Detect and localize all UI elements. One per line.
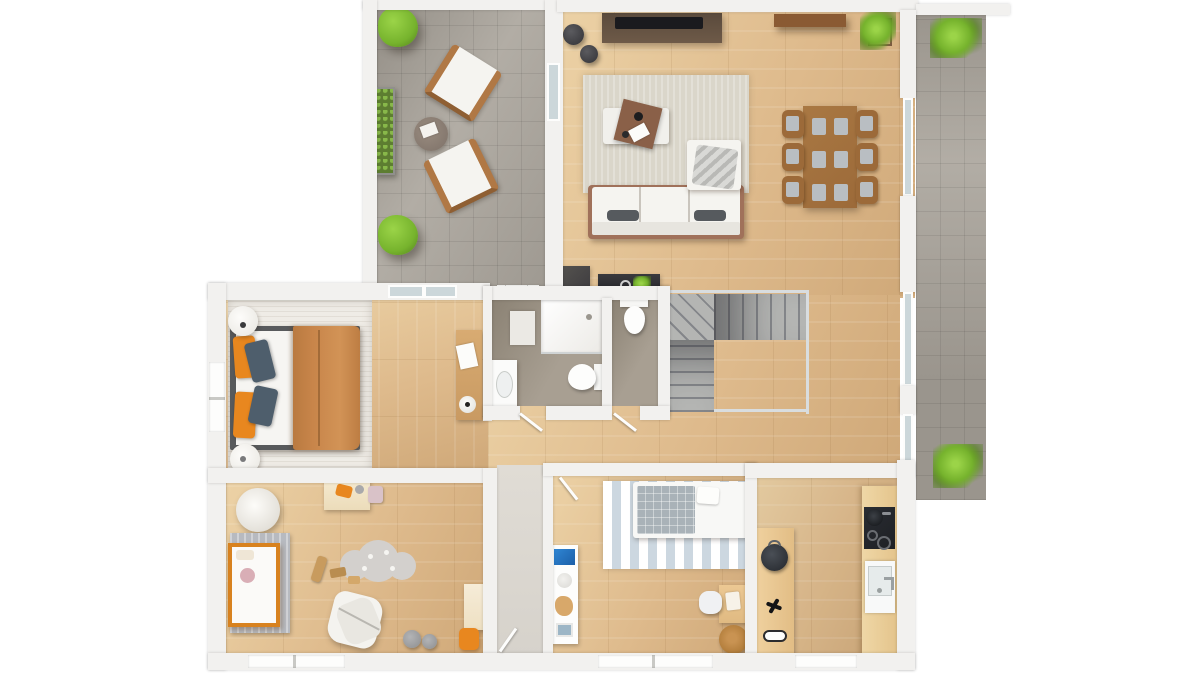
jute-rug [719,625,748,654]
pot-handle [882,512,891,515]
wall [916,4,1010,15]
wall [545,0,563,296]
bag [761,544,788,571]
sink-basin [496,371,513,398]
wall [897,460,915,670]
wooden-toy [348,576,360,584]
nightstand [228,306,258,336]
shower [541,300,602,354]
floor-pouf [580,45,598,63]
glass-door [903,414,913,462]
throw-blanket [691,144,738,189]
dining-cushion [834,184,848,201]
bag-handle [768,540,781,546]
bed-pillow [696,486,719,504]
bush-icon [378,215,418,255]
floor-pouf [563,24,584,45]
bath-mat [510,311,535,345]
wall [745,463,915,478]
wall [363,0,560,10]
picture-frame [556,623,573,637]
sofa-cushion [694,210,726,221]
lamp-button [465,402,470,407]
wall [658,286,670,418]
wall [900,196,916,292]
glass-door [547,63,560,121]
wall [543,465,553,660]
wall [745,463,757,658]
stairs-winder [668,294,714,340]
terrace-plant-icon [933,444,983,488]
stairs-left-run [668,340,714,412]
wall [900,10,916,98]
tv-icon [615,17,703,29]
toy-box [368,486,383,503]
wall [483,286,492,421]
sofa-backrest [592,222,740,235]
toilet-icon [568,364,596,390]
dining-cushion [812,184,826,201]
bowl [557,573,572,588]
entry-hall-floor [497,465,545,660]
notebook [725,591,741,610]
glass-railing [714,409,806,412]
mini-pouf [403,630,421,648]
bowl [634,112,643,121]
wall [208,468,483,483]
dining-cushion [812,118,826,135]
basket [555,596,573,616]
plaid-blanket [637,486,695,534]
wall [483,406,520,420]
window [209,362,225,432]
terrace-plant-icon [930,18,982,58]
window [598,655,713,668]
floor-basket [236,488,280,532]
glass-door [903,292,913,386]
crib-pillow [236,550,254,560]
nightstand-decor [240,456,246,462]
faucet [884,577,894,580]
dining-cushion [834,118,848,135]
wall [900,386,916,414]
blanket-fold [318,330,320,446]
burner-ring [867,530,878,541]
glass-railing [806,292,809,414]
wall-shelf [774,14,846,27]
sink-drain [877,588,882,593]
dining-cushion [812,151,826,168]
shower-drain [586,314,592,320]
kids-chair [459,628,479,650]
bed-blanket [293,326,360,450]
plush-toy [240,568,255,583]
wall [557,0,918,12]
cup [622,131,629,138]
mini-pouf [422,634,437,649]
toy [355,485,364,494]
dining-cushion [834,151,848,168]
desk-chair [699,591,722,614]
pot [866,509,883,526]
floor-plan-render [0,0,1200,675]
glass-railing [664,290,809,293]
terrace-slider-door [388,285,457,298]
wall [483,468,497,660]
potted-plant-icon [860,12,896,50]
storage-box-blue [554,549,575,565]
burner-ring [877,536,891,550]
sofa-cushion [607,210,639,221]
planter-box [374,87,395,175]
shower-glass [541,352,602,354]
glass-door [903,98,913,196]
window [248,655,345,668]
wall [543,463,757,476]
stairs-upper-run [714,294,806,340]
tray [763,630,787,642]
nightstand-decor [240,322,246,328]
wall [640,406,670,420]
wall [483,286,670,300]
wall [363,0,377,292]
window [795,655,857,668]
wall [602,298,612,406]
terrace-side-floor [916,14,986,500]
wall [546,406,612,420]
bush-icon [378,7,418,47]
